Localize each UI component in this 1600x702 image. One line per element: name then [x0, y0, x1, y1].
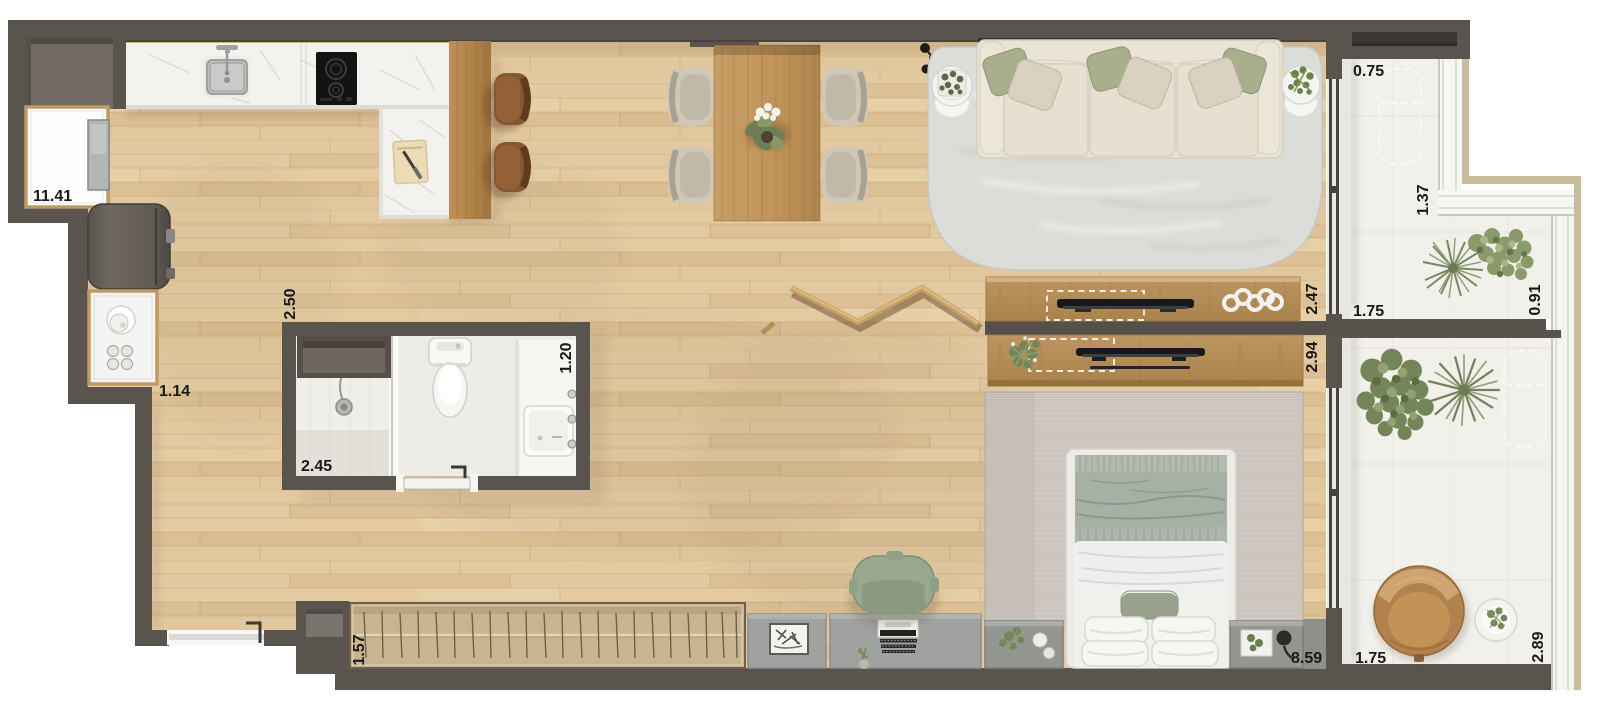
- svg-text:2.94: 2.94: [1304, 341, 1321, 372]
- svg-text:2.89: 2.89: [1530, 631, 1547, 662]
- svg-text:1.75: 1.75: [1353, 303, 1384, 320]
- svg-text:11.41: 11.41: [33, 188, 72, 205]
- svg-text:0.91: 0.91: [1527, 284, 1544, 315]
- svg-text:1.37: 1.37: [1415, 184, 1432, 215]
- svg-text:2.47: 2.47: [1304, 283, 1321, 314]
- svg-text:1.57: 1.57: [351, 634, 368, 665]
- svg-text:8.59: 8.59: [1291, 650, 1322, 667]
- svg-text:2.45: 2.45: [301, 458, 332, 475]
- svg-text:1.14: 1.14: [159, 383, 190, 400]
- svg-text:1.20: 1.20: [558, 342, 575, 373]
- svg-text:0.75: 0.75: [1353, 63, 1384, 80]
- svg-text:2.50: 2.50: [282, 288, 299, 319]
- svg-text:1.75: 1.75: [1355, 650, 1386, 667]
